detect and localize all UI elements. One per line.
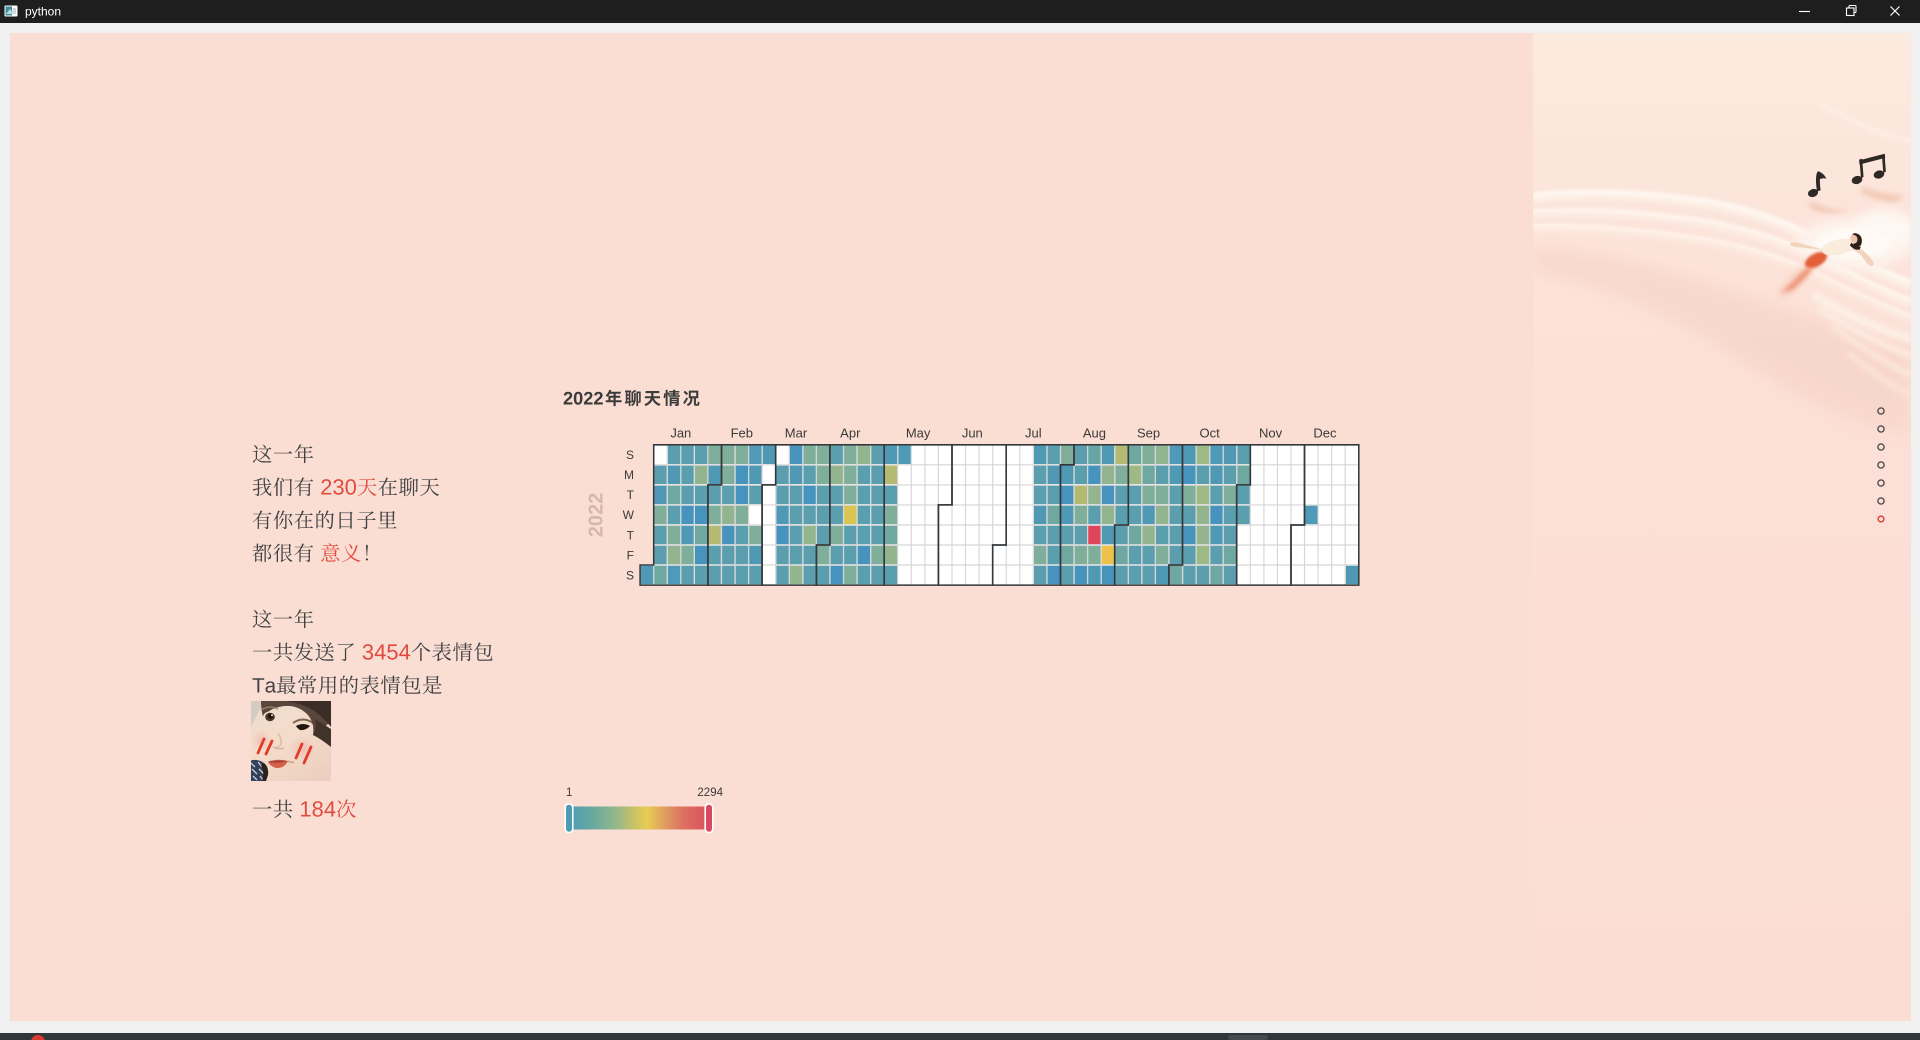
svg-text:F: F xyxy=(627,548,634,562)
svg-text:Oct: Oct xyxy=(1199,426,1220,441)
svg-text:T: T xyxy=(627,488,635,502)
svg-text:M: M xyxy=(624,468,634,482)
svg-text:T: T xyxy=(627,528,635,542)
svg-text:May: May xyxy=(906,426,931,441)
svg-text:2294: 2294 xyxy=(697,787,723,799)
svg-text:S: S xyxy=(626,448,634,462)
svg-text:Mar: Mar xyxy=(785,426,808,441)
svg-text:2022: 2022 xyxy=(586,493,608,538)
svg-text:Aug: Aug xyxy=(1083,426,1106,441)
svg-text:Jan: Jan xyxy=(670,426,691,441)
svg-text:W: W xyxy=(623,508,635,522)
svg-text:python: python xyxy=(25,5,61,19)
svg-text:Feb: Feb xyxy=(731,426,753,441)
svg-text:Nov: Nov xyxy=(1259,426,1283,441)
svg-text:Jun: Jun xyxy=(962,426,983,441)
svg-text:Apr: Apr xyxy=(840,426,861,441)
svg-text:Dec: Dec xyxy=(1313,426,1337,441)
svg-text:Sep: Sep xyxy=(1137,426,1160,441)
svg-text:1: 1 xyxy=(566,787,572,799)
svg-text:S: S xyxy=(626,568,634,582)
svg-text:Jul: Jul xyxy=(1025,426,1042,441)
